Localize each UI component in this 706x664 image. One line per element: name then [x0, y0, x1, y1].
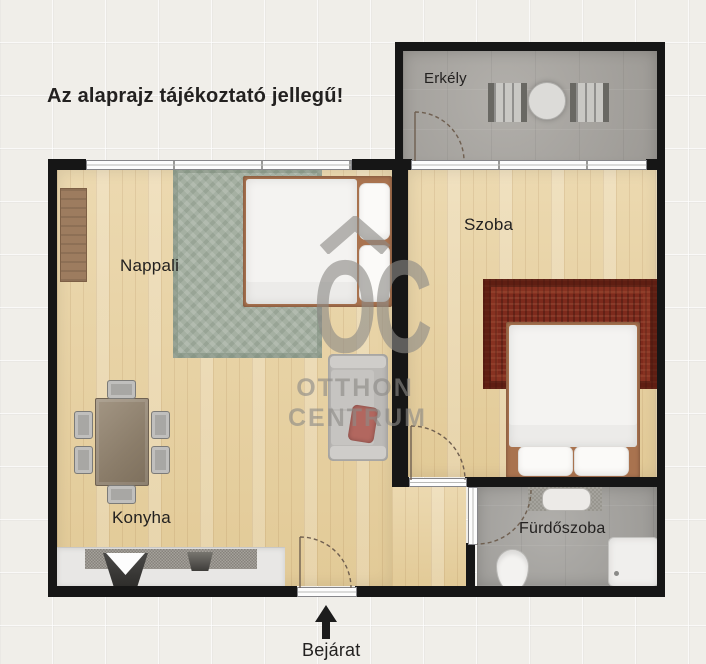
- dining-chair: [151, 411, 170, 439]
- hallway-floor: [392, 487, 466, 586]
- shower-drain: [614, 571, 619, 576]
- kitchen-label: Konyha: [112, 508, 171, 528]
- wall-living-top-right: [352, 159, 395, 170]
- balcony-chair: [488, 83, 527, 122]
- sofa-armrest: [330, 446, 386, 459]
- dining-chair: [107, 485, 136, 504]
- entrance-label: Bejárat: [302, 640, 360, 661]
- dining-chair: [151, 446, 170, 474]
- living-room-label: Nappali: [120, 256, 179, 276]
- bathroom-door-threshold: [468, 487, 478, 545]
- bedroom-bed-duvet: [509, 325, 637, 447]
- bathroom-label: Fürdőszoba: [519, 520, 606, 538]
- wall-living-top-left: [48, 159, 86, 170]
- balcony-table: [528, 82, 566, 120]
- disclaimer-text: Az alaprajz tájékoztató jellegű!: [47, 85, 343, 108]
- shower-tray: [608, 537, 659, 587]
- wall-balcony-left: [395, 42, 403, 170]
- dining-table: [95, 398, 149, 486]
- watermark-monogram: OC: [313, 256, 396, 359]
- wall-left: [48, 159, 57, 597]
- wall-balcony-top: [395, 42, 665, 51]
- balcony-label: Erkély: [424, 70, 467, 87]
- floor-plan: Az alaprajz tájékoztató jellegű!: [0, 0, 706, 664]
- dining-chair: [74, 446, 93, 474]
- sideboard: [60, 188, 87, 282]
- wall-bedroom-bottom-stub: [392, 477, 409, 487]
- bedroom-bed-pillow: [574, 446, 629, 476]
- living-room-window: [86, 160, 352, 170]
- balcony-window-door: [411, 160, 647, 170]
- bedroom-door-threshold: [409, 478, 467, 487]
- wall-bottom-left: [48, 586, 297, 597]
- watermark-name-line2: CENTRUM: [288, 403, 422, 433]
- dining-chair: [107, 380, 136, 399]
- wall-right: [657, 42, 665, 597]
- balcony-chair: [570, 83, 609, 122]
- wall-bedroom-bottom: [465, 477, 665, 487]
- bathroom-sink: [542, 488, 591, 511]
- wall-bedroom-top-right: [646, 159, 665, 170]
- bedroom-label: Szoba: [464, 215, 513, 235]
- bedroom-bed-pillow: [518, 446, 573, 476]
- watermark: OC OTTHON CENTRUM: [288, 216, 422, 433]
- entrance-arrow-icon: [308, 603, 348, 643]
- dining-chair: [74, 411, 93, 439]
- wall-bottom-right: [355, 586, 665, 597]
- entrance-door-threshold: [297, 587, 357, 597]
